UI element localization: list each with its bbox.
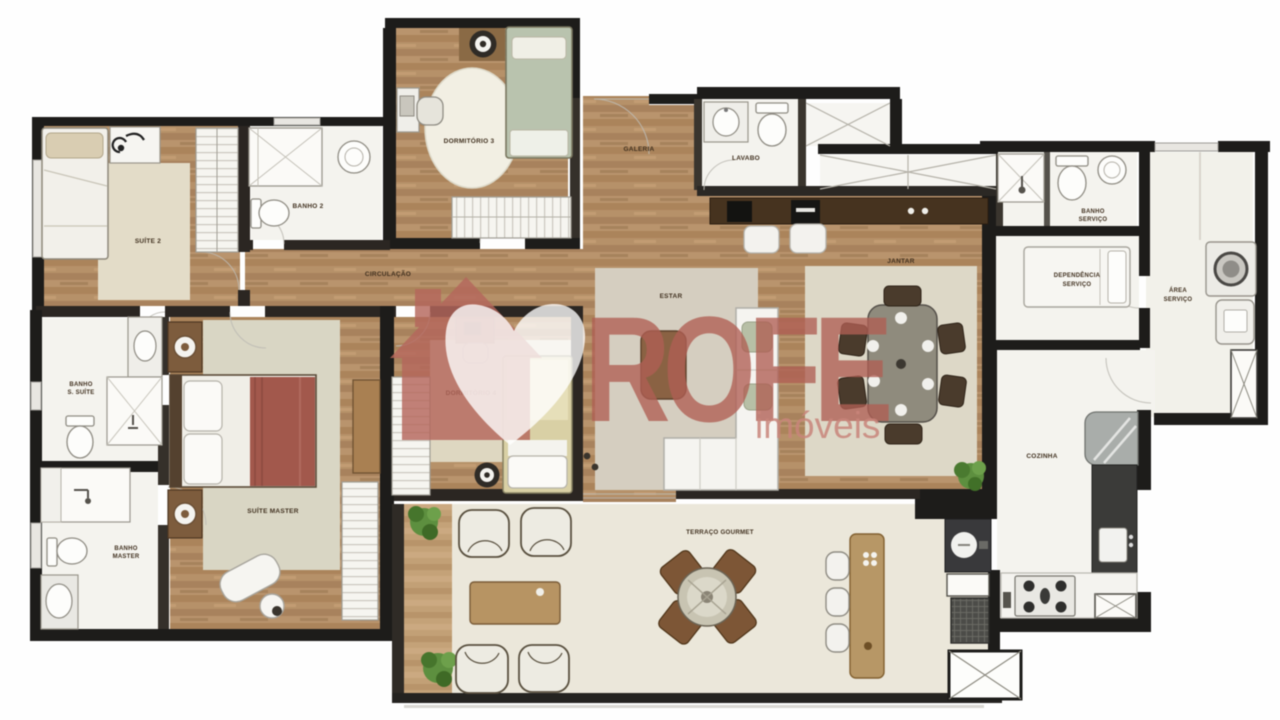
svg-text:BANHO: BANHO (69, 382, 92, 388)
svg-text:SERVIÇO: SERVIÇO (1164, 297, 1193, 303)
svg-text:BANHO: BANHO (114, 546, 137, 552)
svg-text:TERRAÇO GOURMET: TERRAÇO GOURMET (686, 529, 754, 536)
svg-text:MASTER: MASTER (113, 554, 140, 560)
svg-text:SERVIÇO: SERVIÇO (1079, 217, 1108, 223)
svg-text:BANHO: BANHO (1081, 209, 1104, 215)
svg-text:CIRCULAÇÃO: CIRCULAÇÃO (365, 269, 411, 278)
svg-text:JANTAR: JANTAR (887, 258, 914, 265)
svg-text:SUÍTE 2: SUÍTE 2 (135, 236, 161, 245)
svg-text:imóveis: imóveis (755, 405, 880, 446)
svg-text:BANHO 2: BANHO 2 (292, 203, 323, 210)
svg-text:LAVABO: LAVABO (732, 155, 760, 162)
svg-text:ÁREA: ÁREA (1169, 287, 1187, 294)
svg-text:SERVIÇO: SERVIÇO (1063, 282, 1092, 288)
svg-text:DORMITÓRIO 3: DORMITÓRIO 3 (444, 136, 495, 145)
svg-text:DEPENDÊNCIA: DEPENDÊNCIA (1054, 271, 1101, 279)
svg-text:S. SUÍTE: S. SUÍTE (67, 388, 94, 396)
svg-text:SUÍTE MASTER: SUÍTE MASTER (247, 506, 298, 515)
svg-text:GALERIA: GALERIA (624, 146, 655, 153)
svg-text:COZINHA: COZINHA (1026, 453, 1057, 460)
